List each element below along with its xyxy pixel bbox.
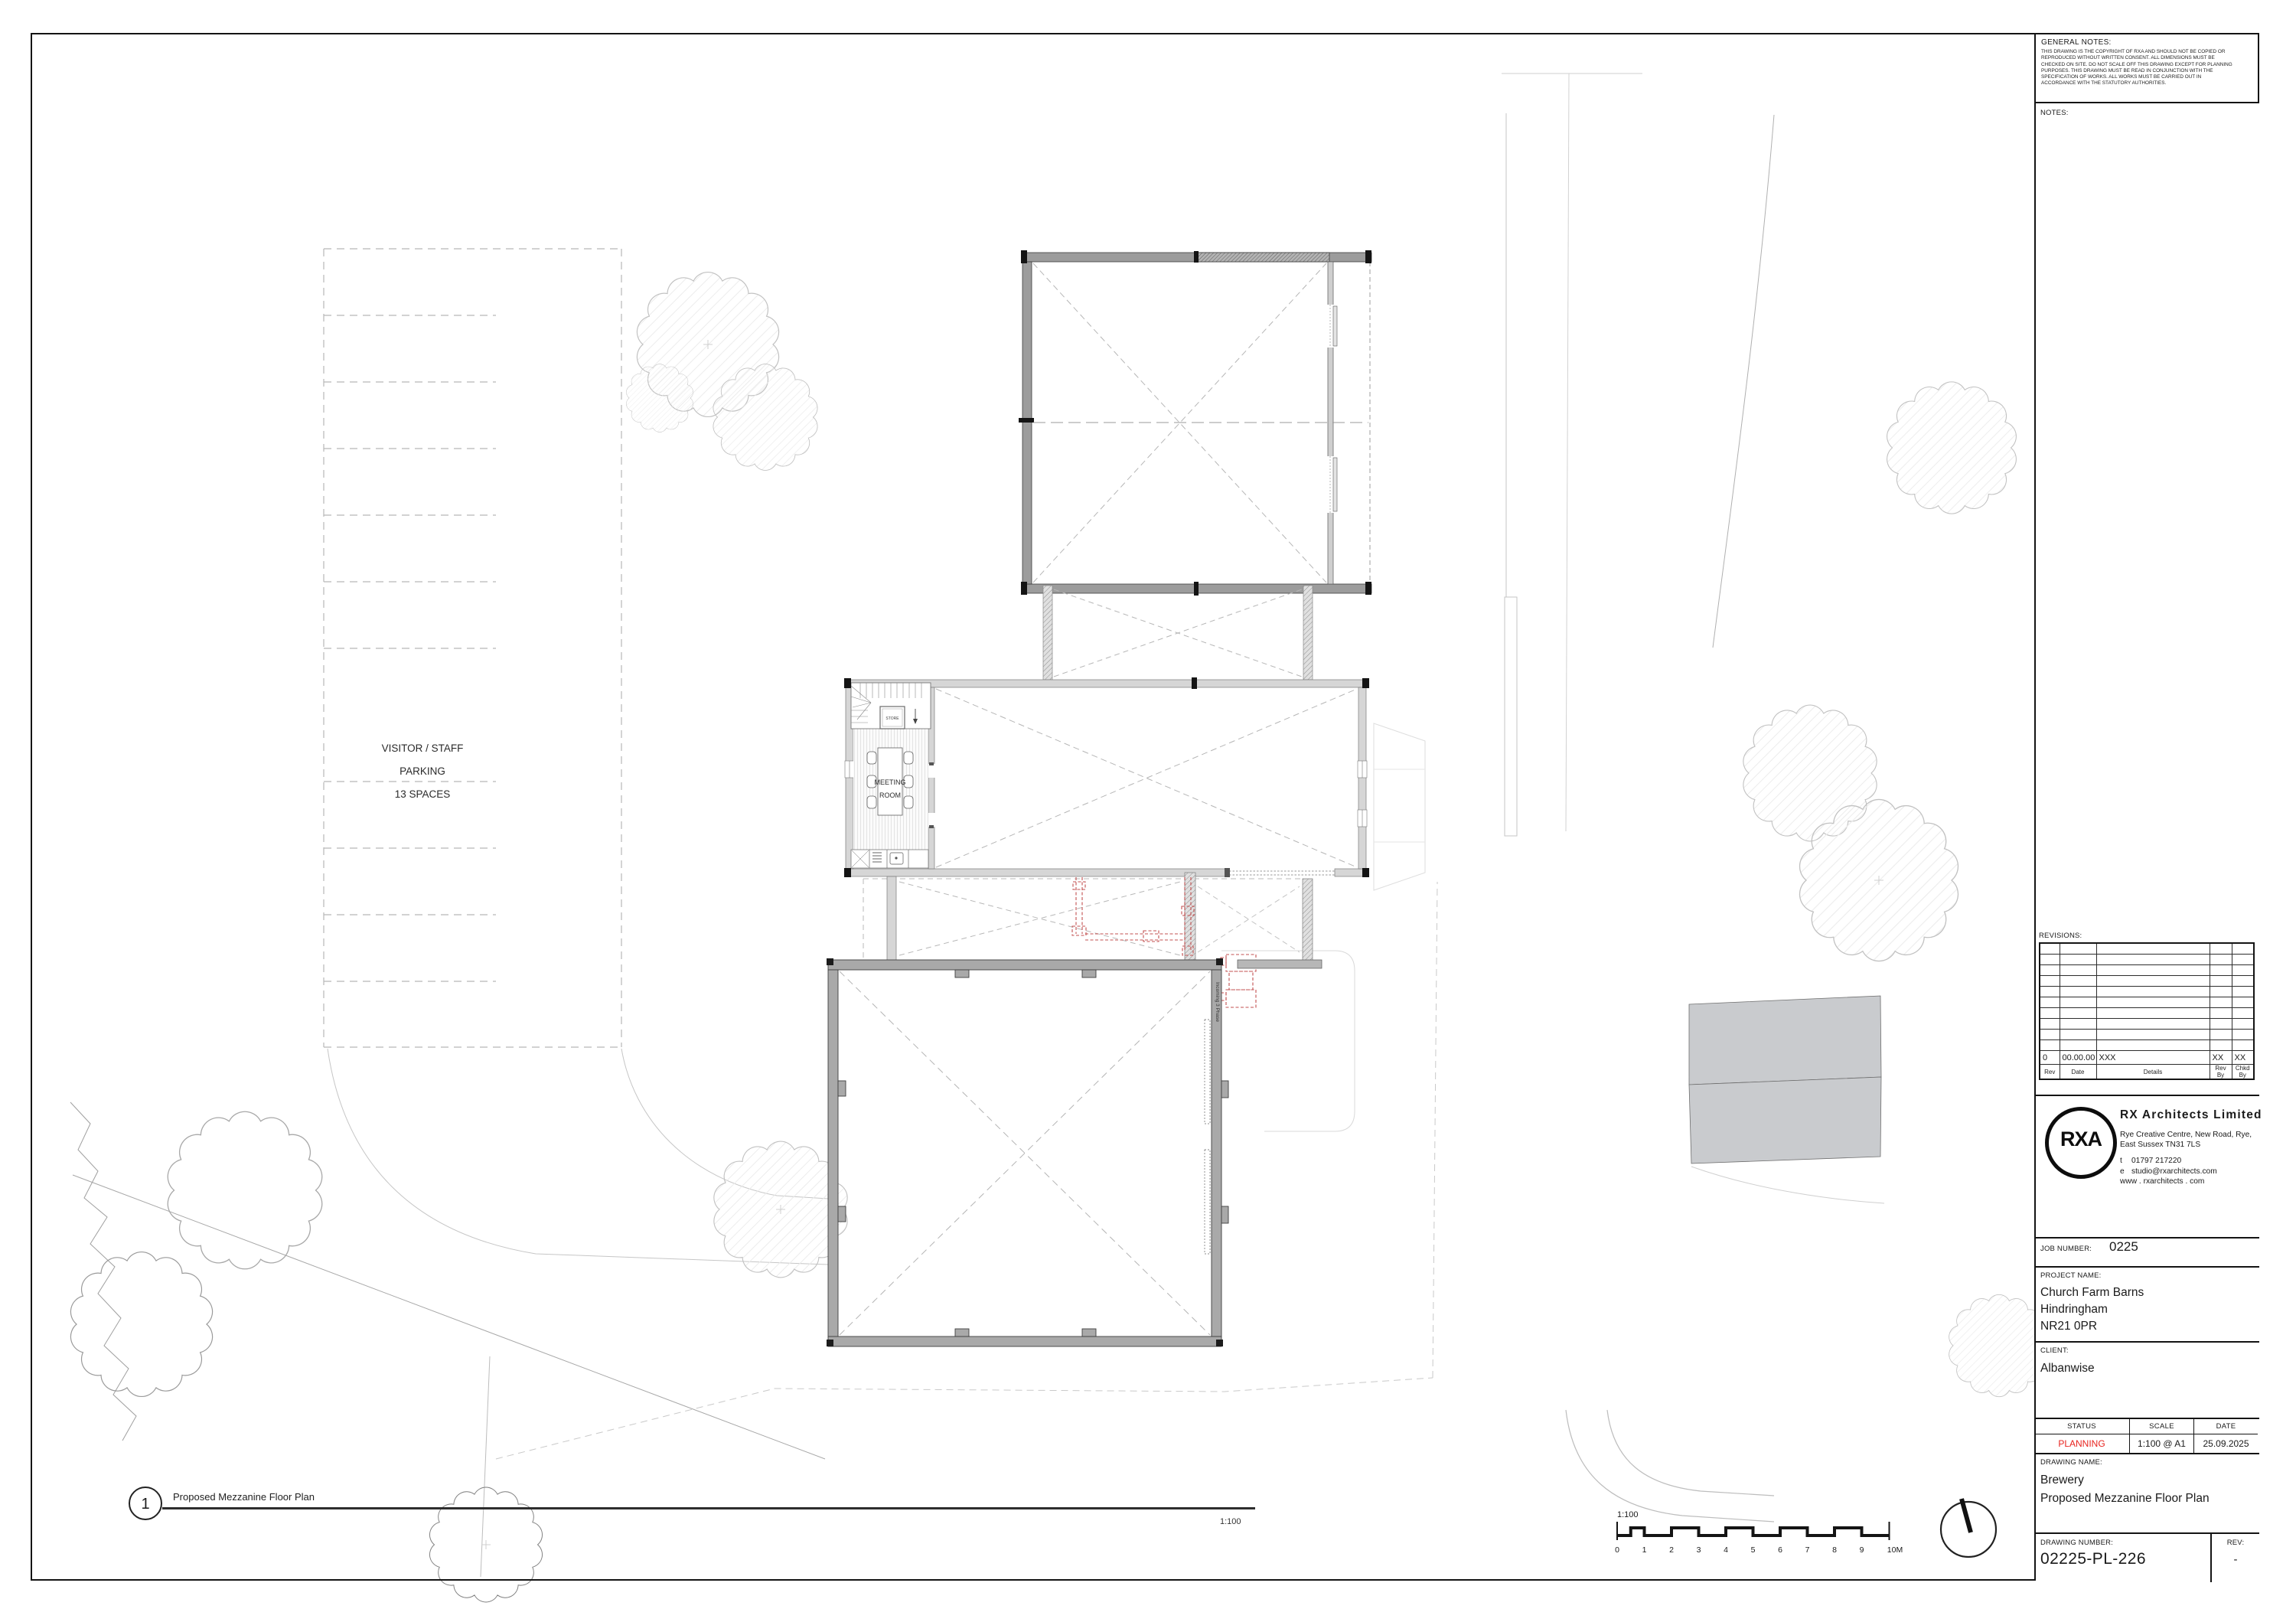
services-ductwork xyxy=(1072,877,1256,1007)
phone-prefix: t xyxy=(2120,1156,2131,1167)
incoming-power-label: Incoming 3 Phase xyxy=(1215,982,1220,1022)
meeting-room-label-line1: MEETING xyxy=(874,778,905,786)
revision-header-details: Details xyxy=(2096,1065,2210,1080)
drawing-name-line2: Proposed Mezzanine Floor Plan xyxy=(2040,1490,2210,1508)
project-line2: Hindringham xyxy=(2040,1301,2144,1318)
rev-box: REV: - xyxy=(2210,1532,2259,1582)
project-name-value: Church Farm Barns Hindringham NR21 0PR xyxy=(2040,1284,2144,1335)
revision-header-rev-by: Rev By xyxy=(2210,1065,2232,1080)
status-scale-date-section: STATUS PLANNING SCALE 1:100 @ A1 DATE 25… xyxy=(2034,1418,2259,1453)
view-number-badge: 1 xyxy=(129,1487,162,1520)
scale-tick: 3 xyxy=(1697,1545,1701,1555)
general-notes-box: GENERAL NOTES: THIS DRAWING IS THE COPYR… xyxy=(2034,33,2259,103)
project-name-label: PROJECT NAME: xyxy=(2040,1271,2102,1280)
scale-tick: 10M xyxy=(1887,1545,1903,1555)
general-notes-title: GENERAL NOTES: xyxy=(2041,38,2252,47)
link-corridor xyxy=(1043,586,1313,680)
general-notes-body: THIS DRAWING IS THE COPYRIGHT OF RXA AND… xyxy=(2041,49,2234,87)
scale-tick: 8 xyxy=(1832,1545,1837,1555)
revision-row xyxy=(2040,1030,2254,1040)
project-line1: Church Farm Barns xyxy=(2040,1284,2144,1301)
revision-row xyxy=(2040,965,2254,976)
parking-label-line1: VISITOR / STAFF xyxy=(382,742,464,754)
revisions-label: REVISIONS: xyxy=(2039,932,2082,940)
firm-email: studio@rxarchitects.com xyxy=(2131,1167,2217,1176)
date-value: 25.09.2025 xyxy=(2194,1434,2258,1453)
revisions-table: 0 00.00.00 XXX XX XX Rev Date Details Re… xyxy=(2039,942,2255,1080)
store-label: STORE xyxy=(885,716,899,721)
drawing-name-line1: Brewery xyxy=(2040,1471,2210,1490)
revision-rev: 0 xyxy=(2040,1051,2060,1065)
status-header: STATUS xyxy=(2034,1419,2129,1434)
kitchenette xyxy=(851,850,928,868)
building-north-barn xyxy=(1019,250,1371,596)
revision-row xyxy=(2040,1019,2254,1030)
firm-contact: t01797 217220 estudio@rxarchitects.com w… xyxy=(2120,1156,2217,1187)
firm-phone: 01797 217220 xyxy=(2131,1157,2181,1165)
trees xyxy=(70,273,2049,1602)
rev-label: REV: xyxy=(2212,1539,2259,1547)
scale-tick: 9 xyxy=(1860,1545,1864,1555)
building-middle: STORE MEETING ROOM xyxy=(844,677,1369,877)
notes-label: NOTES: xyxy=(2040,109,2069,117)
courtyard-link xyxy=(863,873,1313,961)
scale-tick: 5 xyxy=(1751,1545,1756,1555)
parking-label-line2: PARKING xyxy=(400,765,445,777)
north-arrow-icon xyxy=(1941,1499,1996,1557)
drawing-name-value: Brewery Proposed Mezzanine Floor Plan xyxy=(2040,1471,2210,1508)
revision-details: XXX xyxy=(2096,1051,2210,1065)
scale-bar: 1:100 0 1 2 3 4 5 6 7 8 9 10M xyxy=(1615,1510,1903,1555)
revision-row xyxy=(2040,997,2254,1008)
drawing-sheet: VISITOR / STAFF PARKING 13 SPACES xyxy=(0,0,2296,1622)
scale-tick: 0 xyxy=(1615,1545,1619,1555)
scale-tick: 1 xyxy=(1642,1545,1647,1555)
firm-logo: RXA xyxy=(2045,1107,2117,1179)
status-value: PLANNING xyxy=(2034,1434,2129,1453)
client-label: CLIENT: xyxy=(2040,1346,2069,1355)
firm-name: RX Architects Limited xyxy=(2120,1108,2262,1122)
revision-row xyxy=(2040,943,2254,955)
client-value: Albanwise xyxy=(2040,1362,2095,1376)
email-prefix: e xyxy=(2120,1167,2131,1177)
firm-address-line1: Rye Creative Centre, New Road, Rye, xyxy=(2120,1130,2252,1140)
project-line3: NR21 0PR xyxy=(2040,1318,2144,1335)
scale-bar-ratio: 1:100 xyxy=(1617,1510,1639,1519)
parking-label: VISITOR / STAFF PARKING 13 SPACES xyxy=(382,742,464,800)
firm-address-line2: East Sussex TN31 7LS xyxy=(2120,1140,2252,1150)
revision-row xyxy=(2040,1040,2254,1051)
scale-tick: 6 xyxy=(1778,1545,1782,1555)
scale-value: 1:100 @ A1 xyxy=(2130,1434,2193,1453)
revision-row xyxy=(2040,976,2254,987)
drawing-number-label: DRAWING NUMBER: xyxy=(2040,1539,2113,1547)
revision-header-chkd-by: Chkd By xyxy=(2232,1065,2254,1080)
revision-row xyxy=(2040,955,2254,965)
floor-plan-canvas: VISITOR / STAFF PARKING 13 SPACES xyxy=(0,0,2296,1622)
parking-label-line3: 13 SPACES xyxy=(395,788,451,800)
firm-website: www . rxarchitects . com xyxy=(2120,1177,2217,1187)
revision-rev-by: XX xyxy=(2210,1051,2232,1065)
drawing-name-label: DRAWING NAME: xyxy=(2040,1458,2102,1467)
building-south: Incoming 3 Phase xyxy=(827,958,1322,1346)
staircase xyxy=(851,683,931,729)
revision-row xyxy=(2040,1008,2254,1019)
meeting-room-label-line2: ROOM xyxy=(879,791,901,799)
revision-date: 00.00.00 xyxy=(2060,1051,2096,1065)
job-number-label: JOB NUMBER: xyxy=(2040,1245,2092,1253)
revision-header-date: Date xyxy=(2060,1065,2096,1080)
scale-tick: 7 xyxy=(1805,1545,1810,1555)
scale-tick: 4 xyxy=(1724,1545,1728,1555)
drawing-number-value: 02225-PL-226 xyxy=(2040,1550,2146,1568)
revision-header-rev: Rev xyxy=(2040,1065,2060,1080)
site-context xyxy=(70,73,1884,1577)
job-number-value: 0225 xyxy=(2109,1239,2138,1255)
parking-area xyxy=(324,249,621,1047)
view-title-underline xyxy=(162,1507,1255,1509)
revision-chkd-by: XX xyxy=(2232,1051,2254,1065)
rev-value: - xyxy=(2212,1553,2259,1566)
revision-header-row: Rev Date Details Rev By Chkd By xyxy=(2040,1065,2254,1080)
scale-tick: 2 xyxy=(1669,1545,1674,1555)
date-header: DATE xyxy=(2194,1419,2258,1434)
revision-row xyxy=(2040,987,2254,997)
firm-address: Rye Creative Centre, New Road, Rye, East… xyxy=(2120,1130,2252,1150)
view-title: Proposed Mezzanine Floor Plan xyxy=(173,1491,315,1503)
view-scale: 1:100 xyxy=(1220,1517,1241,1526)
revision-entry-row: 0 00.00.00 XXX XX XX xyxy=(2040,1051,2254,1065)
scale-header: SCALE xyxy=(2130,1419,2193,1434)
